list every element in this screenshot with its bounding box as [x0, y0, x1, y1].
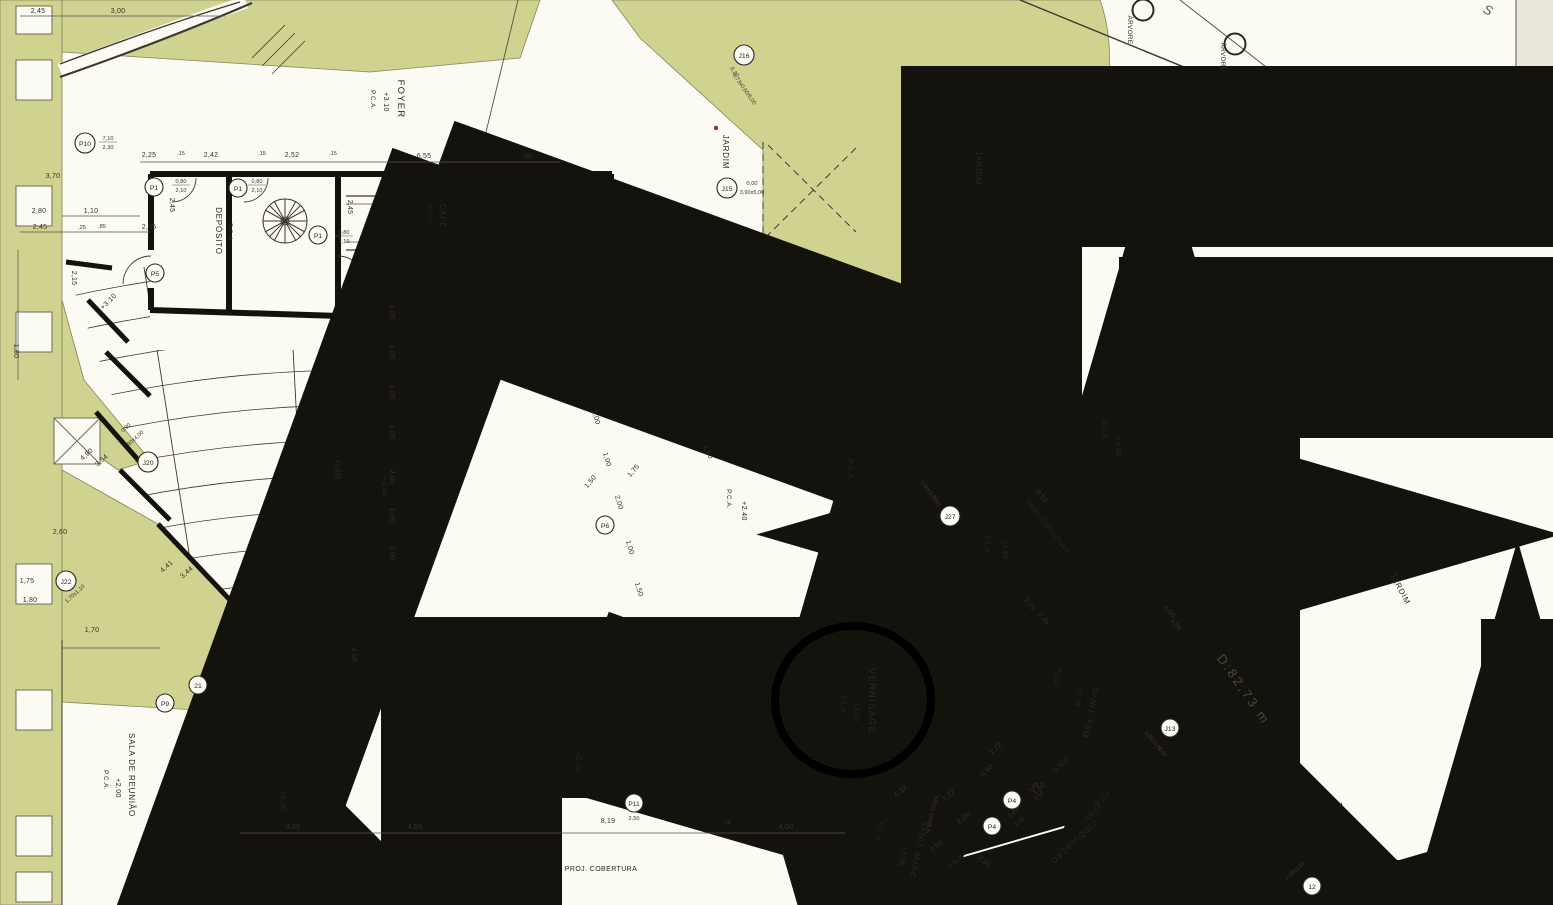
- level-sala: +2.00: [114, 778, 121, 798]
- svg-text:4,85: 4,85: [286, 824, 300, 831]
- room-label-cafe: CAFÉ: [438, 204, 447, 229]
- svg-text:2,10: 2,10: [339, 239, 350, 245]
- tag-p10: P10: [79, 141, 91, 148]
- tag-p1-b: P1: [234, 186, 243, 193]
- svg-text:2,05: 2,05: [142, 224, 156, 231]
- svg-text:2,00: 2,00: [388, 470, 395, 484]
- tag-j22: J22: [61, 579, 72, 586]
- svg-text:2,25: 2,25: [142, 152, 156, 159]
- pca-foyer: P.C.A.: [369, 90, 376, 110]
- pca-sala: P.C.A.: [102, 770, 109, 790]
- svg-text:2,45: 2,45: [33, 224, 47, 231]
- svg-text:4,58: 4,58: [349, 647, 357, 662]
- level-gar: +2.40: [380, 477, 387, 497]
- svg-text:1,00: 1,00: [388, 425, 395, 439]
- label-arvore-2: ÁRVORE: [1219, 43, 1228, 72]
- label-jardim-1: JARDIM: [721, 135, 730, 170]
- svg-text:1,00: 1,00: [388, 546, 395, 560]
- svg-text:1,80: 1,80: [23, 597, 37, 604]
- scan-speck: [714, 126, 718, 130]
- tag-j13: J13: [1165, 726, 1176, 733]
- svg-text:0,00: 0,00: [747, 181, 758, 187]
- svg-text:2,45: 2,45: [168, 198, 175, 212]
- svg-text:1,10: 1,10: [84, 208, 98, 215]
- svg-text:0,80: 0,80: [176, 179, 187, 185]
- svg-text:,85: ,85: [98, 224, 106, 230]
- svg-text:2,15: 2,15: [70, 271, 77, 285]
- svg-text:4,00: 4,00: [779, 824, 793, 831]
- tag-j15: J15: [722, 186, 733, 193]
- svg-text:4,09: 4,09: [408, 824, 422, 831]
- pca-court: P.C.A.: [725, 489, 732, 509]
- svg-text:2,52: 2,52: [285, 152, 299, 159]
- level-plaza-1: +1.80: [1114, 437, 1121, 457]
- room-label-gar: GAR.: [333, 461, 342, 484]
- svg-text:2,10: 2,10: [252, 188, 263, 194]
- svg-text:2,10: 2,10: [176, 188, 187, 194]
- room-label-foyer: FOYER: [395, 80, 406, 119]
- floorplan-svg: FOYER +3.10 P.C.A. DEPÓSITO P.C.A. CAFÉ …: [0, 0, 1553, 905]
- pca-plaza-2: P.C.A.: [983, 535, 990, 555]
- room-label-deposito: DEPÓSITO: [214, 207, 223, 255]
- svg-text:2,80: 2,80: [32, 208, 46, 215]
- pca-court-arc: P.C.A.: [846, 459, 853, 481]
- room-label-sala: SALA DE REUNIÃO: [127, 733, 136, 817]
- tag-p11: P11: [628, 801, 640, 808]
- tag-21: 21: [194, 683, 202, 690]
- tag-j16: J16: [739, 53, 750, 60]
- level-court: +2.40: [740, 501, 747, 521]
- garden-left-strip: [0, 0, 62, 905]
- tag-p1-c: P1: [314, 233, 323, 240]
- svg-text:2,60: 2,60: [53, 529, 67, 536]
- level-vernissage: +2.00: [852, 702, 859, 722]
- crossed-square: [54, 418, 100, 464]
- tag-p1-a: P1: [150, 185, 159, 192]
- tag-j27: J27: [945, 514, 956, 521]
- svg-text:2,45: 2,45: [346, 200, 353, 214]
- svg-text:1,00: 1,00: [388, 385, 395, 399]
- spiral-stair: [263, 199, 307, 243]
- tag-p4-a: P4: [1008, 798, 1017, 805]
- svg-text:2,30: 2,30: [103, 145, 114, 151]
- pca-plaza-1: P.C.A.: [1100, 421, 1107, 441]
- svg-text:2,50: 2,50: [629, 816, 640, 822]
- level-stage-2: +2.00: [279, 791, 286, 811]
- svg-text:1,00: 1,00: [388, 345, 395, 359]
- tag-p4-b: P4: [988, 824, 997, 831]
- tag-p5: P5: [151, 271, 160, 278]
- svg-text:3,70: 3,70: [46, 173, 60, 180]
- level-plaza-2: +1.80: [1001, 540, 1008, 560]
- room-label-vernissage: VERNISAGE: [866, 668, 877, 734]
- svg-text:2,42: 2,42: [204, 152, 218, 159]
- svg-text:1,00: 1,00: [388, 305, 395, 319]
- svg-text:1,70: 1,70: [85, 627, 99, 634]
- svg-text:,15: ,15: [258, 151, 266, 157]
- floorplan-canvas: FOYER +3.10 P.C.A. DEPÓSITO P.C.A. CAFÉ …: [0, 0, 1553, 905]
- svg-text:,15: ,15: [329, 151, 337, 157]
- svg-text:,60: ,60: [522, 153, 532, 160]
- level-foyer: +3.10: [382, 92, 389, 112]
- svg-text:,25: ,25: [78, 225, 86, 231]
- pca-cafe: P.C.A.: [426, 206, 433, 226]
- svg-text:,15: ,15: [177, 151, 185, 157]
- svg-text:1,75: 1,75: [20, 578, 34, 585]
- svg-text:2,45: 2,45: [31, 8, 45, 15]
- label-arvore-1: ÁRVORE: [1126, 16, 1135, 45]
- svg-text:3,90x5,00: 3,90x5,00: [740, 190, 765, 196]
- svg-text:3,00: 3,00: [111, 8, 125, 15]
- svg-text:7,10: 7,10: [103, 136, 114, 142]
- svg-text:1,00: 1,00: [388, 508, 395, 522]
- svg-text:,15: ,15: [723, 820, 731, 826]
- svg-text:0,80: 0,80: [339, 230, 350, 236]
- level-stage-1: +2.00: [574, 752, 581, 772]
- tag-p9: P9: [161, 701, 170, 708]
- pca-vernissage: P.C.A.: [839, 695, 846, 715]
- svg-text:6,55: 6,55: [417, 153, 431, 160]
- svg-text:1,60: 1,60: [12, 344, 19, 358]
- tag-j20: J20: [143, 460, 154, 467]
- label-jardim-2: JARDIM: [974, 151, 983, 186]
- pca-deposito: P.C.A.: [226, 223, 233, 243]
- label-proj-cobertura-2: PROJ. COBERTURA: [565, 866, 637, 873]
- svg-text:0,80: 0,80: [252, 179, 263, 185]
- tag-p6: P6: [601, 523, 610, 530]
- svg-text:8,19: 8,19: [601, 818, 615, 825]
- tag-12: 12: [1308, 884, 1316, 891]
